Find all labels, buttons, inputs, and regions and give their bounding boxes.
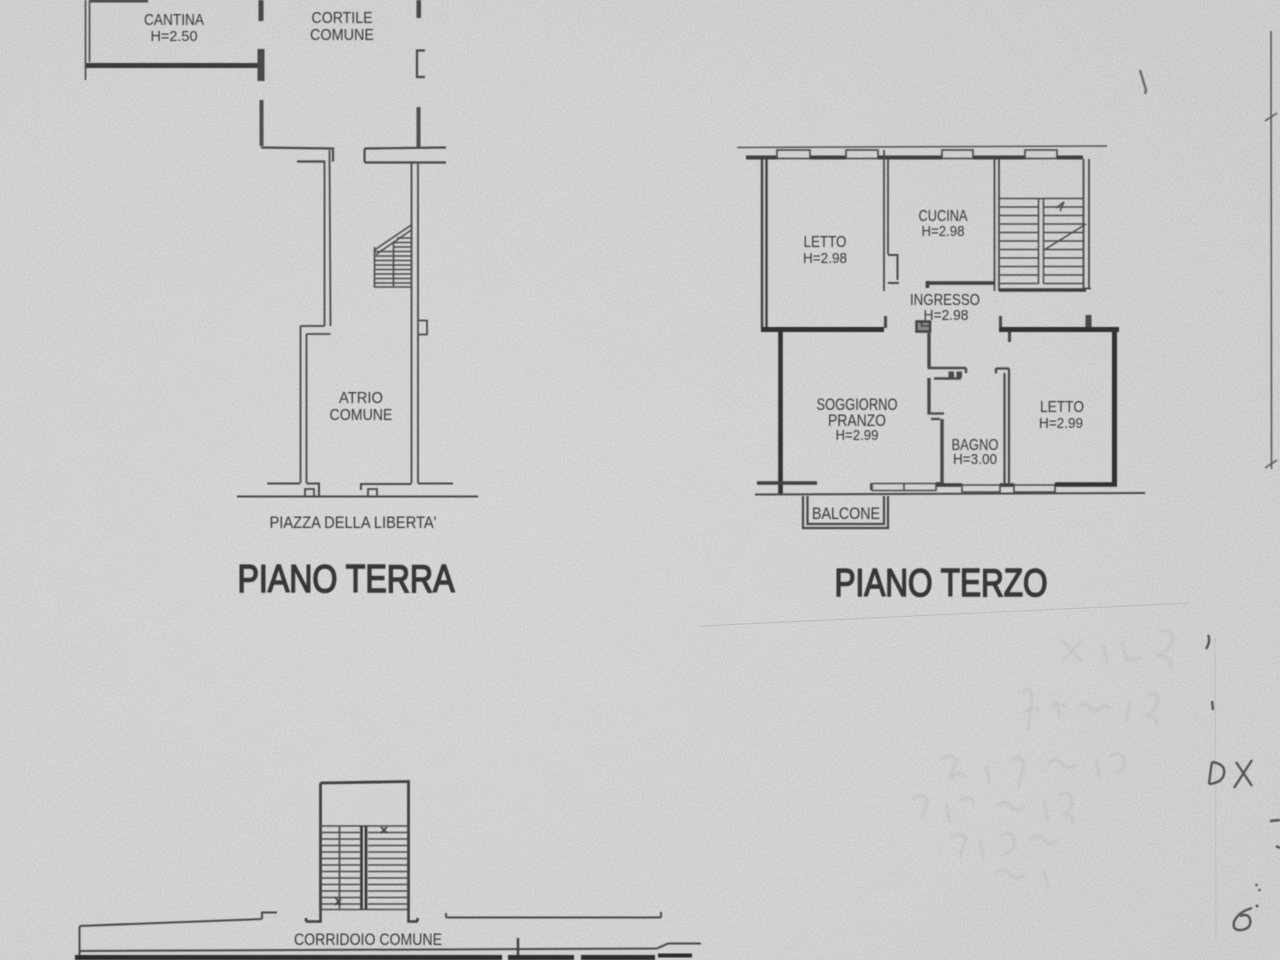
svg-text:CANTINA: CANTINA <box>144 12 204 29</box>
svg-text:COMUNE: COMUNE <box>310 27 374 44</box>
svg-text:PIANO TERRA: PIANO TERRA <box>238 558 455 601</box>
svg-text:BALCONE: BALCONE <box>812 505 880 523</box>
svg-text:COMUNE: COMUNE <box>330 407 393 424</box>
svg-text:H=2.98: H=2.98 <box>922 223 965 240</box>
svg-text:LETTO: LETTO <box>804 234 847 251</box>
svg-text:PIANO TERZO: PIANO TERZO <box>835 562 1048 605</box>
svg-text:PIAZZA DELLA LIBERTA': PIAZZA DELLA LIBERTA' <box>270 514 437 532</box>
svg-text:H=2.99: H=2.99 <box>836 427 879 444</box>
svg-text:LETTO: LETTO <box>1040 399 1084 416</box>
svg-text:H=2.50: H=2.50 <box>151 28 198 45</box>
svg-text:H=2.98: H=2.98 <box>803 250 847 267</box>
svg-text:CORRIDOIO COMUNE: CORRIDOIO COMUNE <box>294 931 442 949</box>
svg-text:CORTILE: CORTILE <box>312 10 373 27</box>
svg-text:H=3.00: H=3.00 <box>953 451 997 468</box>
svg-text:H=2.99: H=2.99 <box>1039 415 1083 432</box>
svg-text:ATRIO: ATRIO <box>339 390 383 407</box>
